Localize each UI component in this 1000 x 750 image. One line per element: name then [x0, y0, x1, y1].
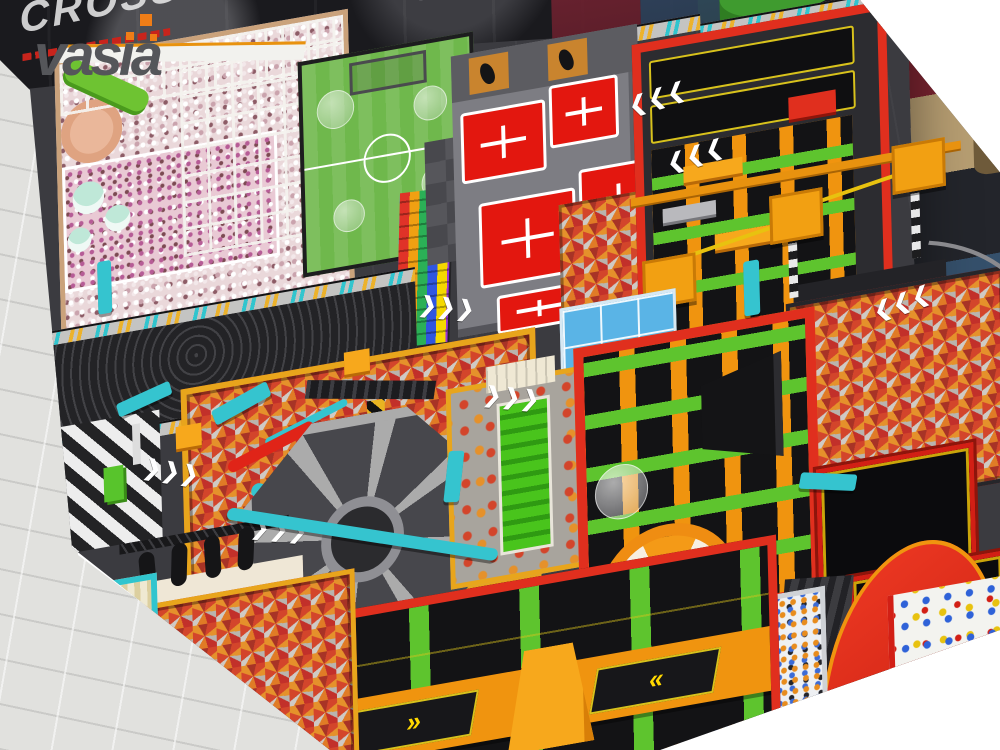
jumper-poster — [547, 38, 587, 81]
orange-step — [176, 423, 202, 450]
ropes-platform — [891, 137, 945, 195]
floor-arrow: ❯❯❯ — [417, 292, 479, 323]
teal-balance-beam — [743, 259, 760, 316]
logo-dot-icon — [126, 32, 134, 40]
bubble-ball — [316, 87, 354, 132]
white-post — [132, 423, 141, 465]
chevron-panel: « — [589, 647, 721, 715]
jumper-silhouette-icon — [478, 61, 497, 87]
bubble-ball — [333, 197, 365, 235]
hazard-stripe-zone — [61, 410, 163, 555]
bubble-ball — [594, 460, 649, 524]
airbag-cross-pad — [460, 99, 547, 185]
airbag-cross-pad — [549, 74, 620, 149]
ropes-platform — [769, 187, 823, 245]
jumper-poster — [469, 52, 509, 95]
scene: CROSSFIT CROSSFIT — [0, 0, 1000, 750]
teal-balance-beam — [798, 472, 857, 491]
vasia-logo: vasia — [34, 22, 159, 89]
teal-balance-beam — [97, 260, 112, 315]
green-pedestal — [103, 465, 124, 503]
orange-step — [344, 348, 370, 375]
chevron-panel: » — [347, 689, 479, 750]
orange-wedge-ramp — [505, 639, 594, 750]
punching-bag — [203, 534, 221, 580]
bubble-ball — [413, 83, 447, 123]
punching-bag — [171, 542, 188, 587]
logo-dot-icon — [150, 34, 157, 41]
jumper-silhouette-icon — [557, 47, 576, 73]
orange-mid-band: » « — [320, 626, 771, 750]
dark-bridge — [305, 380, 436, 399]
soccer-goal — [349, 50, 427, 96]
floor-arrow: ❯❯❯ — [482, 382, 544, 413]
green-conveyor-ramp — [497, 395, 554, 556]
logo-dot-icon — [140, 14, 152, 26]
